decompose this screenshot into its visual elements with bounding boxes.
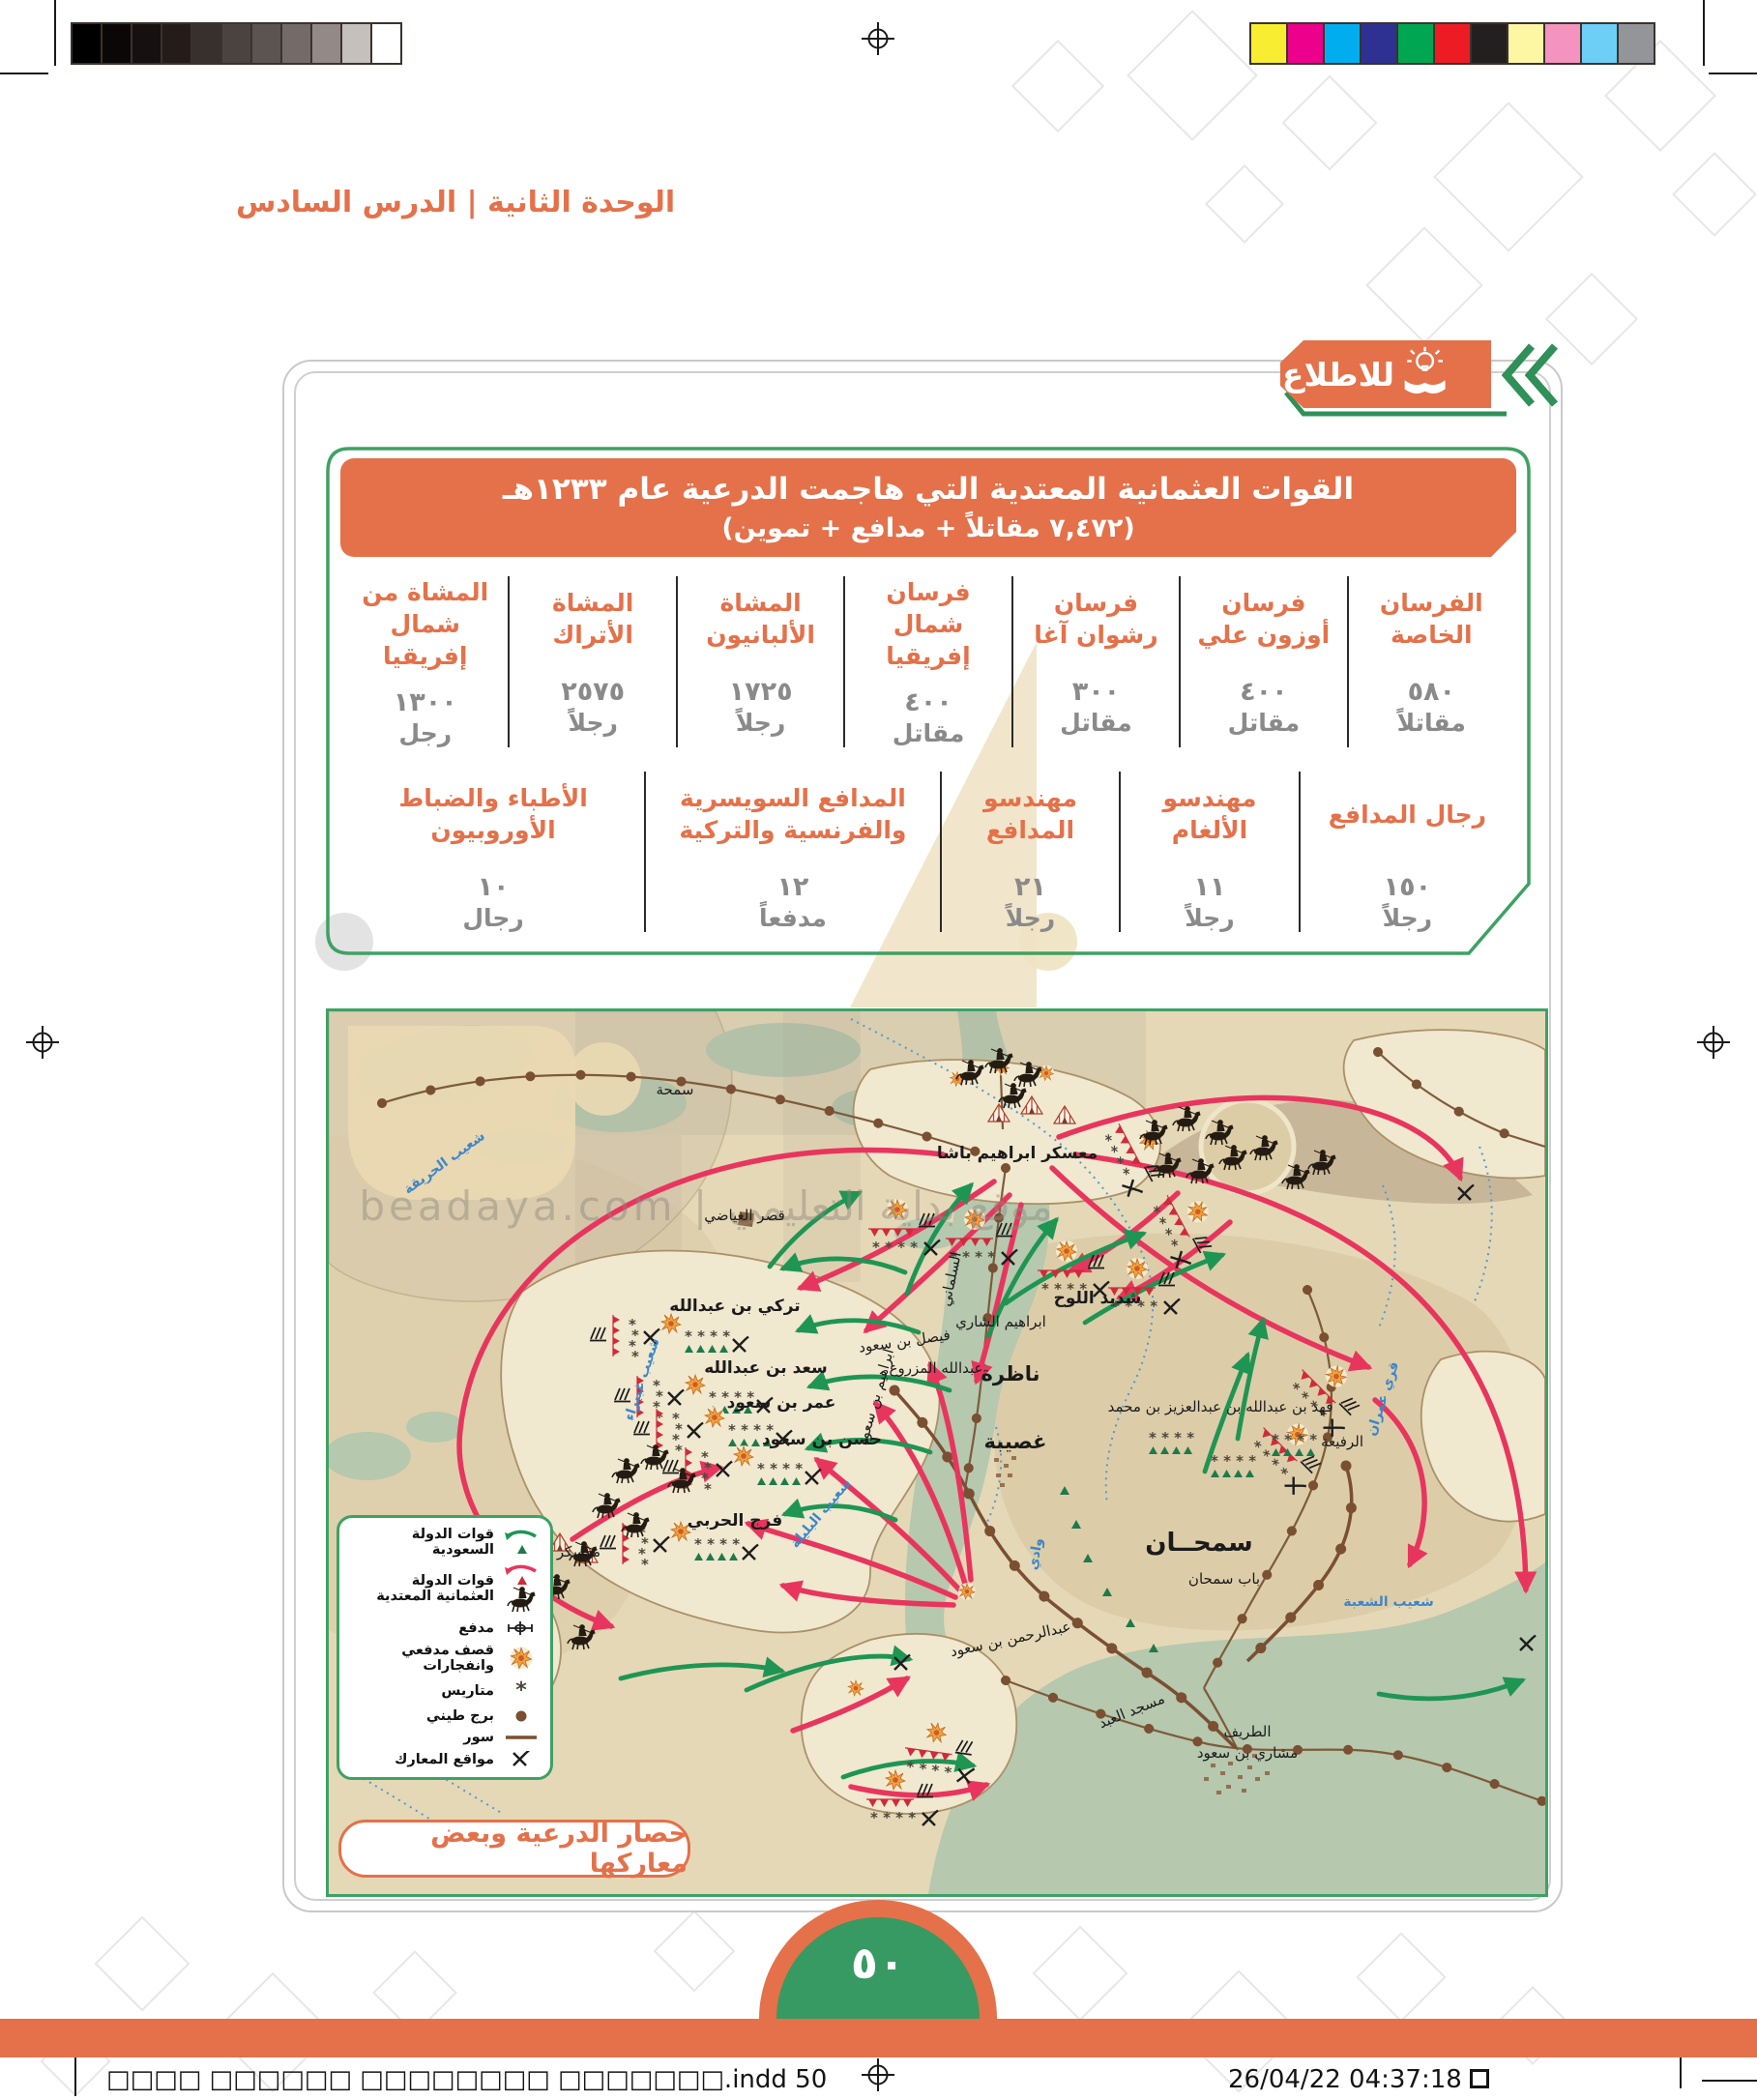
print-slug-left: □□□□ □□□□□□ □□□□□□□□ □□□□□□□.indd 50 (106, 2065, 827, 2094)
force-column: المدافع السويسرية والفرنسية والتركية١٢مد… (644, 772, 940, 932)
registration-target (1697, 1026, 1730, 1059)
lesson-header: الوحدة الثانية | الدرس السادس (236, 186, 675, 219)
legend-row: قصف مدفعي وانفجارات (349, 1643, 541, 1674)
slug-end-box (1470, 2069, 1489, 2088)
table-title-line1: القوات العثمانية المعتدية التي هاجمت الد… (340, 472, 1516, 507)
map-label: فرج الحربي (688, 1511, 783, 1531)
color-swatch (1433, 24, 1470, 63)
legend-label: قوات الدولة السعودية (349, 1527, 494, 1558)
color-swatch (1396, 24, 1433, 63)
map-label: الطريف (1223, 1723, 1271, 1740)
color-swatch (1323, 24, 1360, 63)
registration-target (26, 1026, 59, 1059)
force-column: الفرسان الخاصة٥٨٠مقاتلاً (1347, 576, 1514, 747)
force-column: مهندسو الألغام١١رجلاً (1119, 772, 1299, 932)
forces-table-title: القوات العثمانية المعتدية التي هاجمت الد… (340, 458, 1516, 557)
legend-row: قوات الدولة العثمانية المعتدية (349, 1563, 541, 1614)
print-timestamp: 26/04/22 04:37:18 (1228, 2065, 1462, 2094)
gray-swatch (73, 24, 101, 63)
color-swatch (1580, 24, 1617, 63)
color-swatch (1470, 24, 1507, 63)
force-column: المشاة من شمال إفريقيا١٣٠٠رجل (342, 576, 508, 747)
gray-swatch (131, 24, 161, 63)
gray-swatch (250, 24, 280, 63)
saudi-forces-icon (502, 1529, 541, 1556)
deco-diamond (1033, 1926, 1128, 2022)
force-column: فرسان رشوان آغا٣٠٠مقاتل (1011, 576, 1179, 747)
legend-row: برج طيني (349, 1708, 541, 1724)
grayscale-print-bar (71, 22, 402, 65)
registration-target (862, 22, 894, 55)
legend-label: سور (463, 1730, 494, 1745)
cannon-icon (502, 1619, 541, 1637)
legend-row: قوات الدولة السعودية (349, 1527, 541, 1558)
map-label: عمر بن سعود (727, 1393, 836, 1413)
legend-row: مدفع (349, 1619, 541, 1637)
deco-diamond (654, 1910, 736, 1993)
map-label: ابراهيم الشاري (955, 1313, 1046, 1331)
table-title-line2: (٧,٤٧٢ مقاتلاً + مدافع + تموين) (340, 513, 1516, 543)
deco-diamond (1356, 1932, 1446, 2022)
force-column: رجال المدافع١٥٠رجلاً (1299, 772, 1514, 932)
page-number-badge: ٥٠ (759, 1900, 997, 2019)
gray-swatch (280, 24, 310, 63)
gray-swatch (310, 24, 340, 63)
legend-label: برج طيني (426, 1708, 494, 1724)
force-column: المشاة الألبانيون١٧٢٥رجلاً (676, 576, 843, 747)
deco-diamond (95, 1916, 190, 2012)
siege-map-container: **** * * * * * * * * * * * * (326, 1008, 1548, 1897)
legend-label: مواقع المعارك (395, 1752, 494, 1767)
explosion-icon (502, 1644, 541, 1673)
color-swatch (1617, 24, 1654, 63)
map-label: قصر الغياضي (704, 1207, 785, 1225)
registration-target (862, 2058, 894, 2091)
deco-diamond (1365, 226, 1483, 344)
print-slug-right: 26/04/22 04:37:18 (1228, 2065, 1489, 2094)
gray-swatch (340, 24, 370, 63)
map-label: سمحــان (1145, 1529, 1252, 1558)
force-column: مهندسو المدافع٢١رجلاً (940, 772, 1120, 932)
legend-label: متاريس (441, 1683, 494, 1699)
force-column: المشاة الأتراك٢٥٧٥رجلاً (508, 576, 675, 747)
gray-swatch (190, 24, 220, 63)
legend-label: قوات الدولة العثمانية المعتدية (349, 1573, 494, 1604)
wall-icon (502, 1734, 541, 1741)
deco-diamond (1672, 152, 1757, 237)
gray-swatch (161, 24, 190, 63)
force-column: فرسان أوزون علي٤٠٠مقاتل (1179, 576, 1346, 747)
map-label: سعد بن عبدالله (704, 1358, 827, 1378)
footer-bar (0, 2019, 1757, 2057)
color-swatch (1543, 24, 1580, 63)
gray-swatch (370, 24, 400, 63)
map-label: معسكر ابراهيم باشا (937, 1144, 1098, 1163)
chevron-left-icon (1530, 346, 1555, 404)
legend-label: قصف مدفعي وانفجارات (349, 1643, 494, 1674)
map-label: باب سمحان (1188, 1570, 1260, 1588)
forces-row-1: الفرسان الخاصة٥٨٠مقاتلاً فرسان أوزون علي… (342, 576, 1514, 747)
deco-diamond (1282, 75, 1378, 171)
force-column: فرسان شمال إفريقيا٤٠٠مقاتل (843, 576, 1010, 747)
map-label: فهد بن عبدالله بن عبدالعزيز بن محمد (1108, 1398, 1333, 1415)
color-swatch (1251, 24, 1286, 63)
forces-row-2: رجال المدافع١٥٠رجلاً مهندسو الألغام١١رجل… (342, 772, 1514, 932)
map-legend: قوات الدولة السعودية قوات الدولة العثمان… (337, 1515, 553, 1780)
color-swatch (1286, 24, 1323, 63)
map-caption: حصار الدرعية وبعض معاركها (338, 1820, 690, 1878)
page-number: ٥٠ (759, 1937, 997, 1989)
legend-row: سور (349, 1730, 541, 1745)
deco-diamond (1127, 10, 1258, 141)
info-tab: للاطلاع (1274, 335, 1594, 422)
mud-tower-icon (502, 1708, 541, 1724)
map-label: عبدالله المزروع (890, 1359, 983, 1377)
legend-row: مواقع المعارك (349, 1751, 541, 1768)
ottoman-forces-icon (502, 1563, 541, 1614)
deco-diamond (1205, 164, 1284, 244)
map-label: سمحة (657, 1081, 694, 1098)
gray-swatch (101, 24, 131, 63)
map-label: مشاري بن سعود (1197, 1744, 1298, 1763)
map-label: شعيب الشعبة (1343, 1594, 1434, 1610)
legend-row: * متاريس (349, 1678, 541, 1703)
map-label: غصيبة (984, 1430, 1047, 1453)
color-swatch (1507, 24, 1543, 63)
deco-diamond (1011, 40, 1104, 132)
map-label: الرفيعة (1321, 1433, 1363, 1450)
map-label: تركي بن عبدالله (669, 1297, 800, 1316)
barricade-icon: * (502, 1678, 541, 1703)
battle-site-icon (502, 1751, 541, 1768)
color-swatch (1360, 24, 1396, 63)
map-label: شديد اللوح (1054, 1289, 1142, 1308)
map-label: ناظرة (981, 1362, 1040, 1385)
legend-label: مدفع (458, 1620, 494, 1636)
tab-label: للاطلاع (1282, 356, 1394, 394)
color-print-bar (1249, 22, 1655, 65)
deco-diamond (1433, 102, 1584, 252)
force-column: الأطباء والضباط الأوروبيون١٠رجال (342, 772, 644, 932)
gray-swatch (220, 24, 250, 63)
textbook-page: { "page": { "lesson_header": "الوحدة الث… (0, 0, 1757, 2100)
